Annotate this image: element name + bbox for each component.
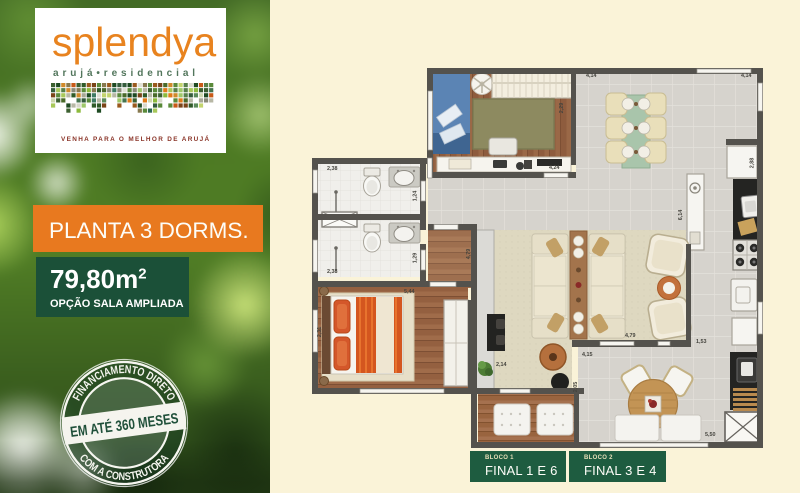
svg-text:4,79: 4,79 xyxy=(466,249,472,260)
svg-text:2,05: 2,05 xyxy=(573,382,579,393)
svg-text:5,50: 5,50 xyxy=(705,432,716,438)
svg-text:2,38: 2,38 xyxy=(327,166,338,172)
svg-text:4,14: 4,14 xyxy=(741,73,752,79)
svg-text:2,88: 2,88 xyxy=(750,158,756,169)
svg-text:2,14: 2,14 xyxy=(496,362,507,368)
svg-text:1,29: 1,29 xyxy=(413,253,419,264)
svg-text:4,79: 4,79 xyxy=(625,333,636,339)
svg-text:5,44: 5,44 xyxy=(404,289,415,295)
svg-text:2,29: 2,29 xyxy=(559,103,565,114)
svg-text:4,15: 4,15 xyxy=(582,352,593,358)
svg-text:1,24: 1,24 xyxy=(413,191,419,202)
svg-text:4,14: 4,14 xyxy=(586,73,597,79)
svg-text:2,38: 2,38 xyxy=(327,269,338,275)
svg-text:2,31: 2,31 xyxy=(317,327,323,338)
svg-text:1,53: 1,53 xyxy=(696,339,707,345)
svg-text:4,24: 4,24 xyxy=(549,165,560,171)
svg-text:6,14: 6,14 xyxy=(678,210,684,221)
